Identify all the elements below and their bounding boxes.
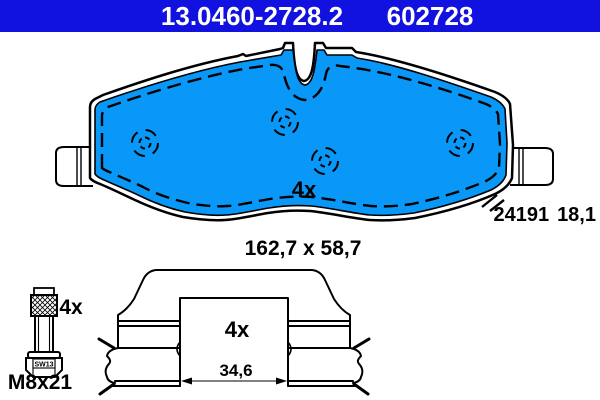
clip-right-foot: [288, 348, 362, 386]
dimension-arrow-left: [181, 378, 192, 385]
bolt-thread-size-label: M8x21: [8, 371, 73, 394]
pad-thickness-value: 18,1: [557, 204, 596, 226]
dimension-arrow-right: [276, 378, 287, 385]
pad-quantity-label: 4x: [292, 177, 317, 202]
clip-left-foot: [106, 348, 180, 386]
pad-dimensions-label: 162,7 x 58,7: [245, 237, 362, 260]
oem-number-label: 602728: [387, 1, 474, 31]
brake-pad-drawing: 4x: [56, 43, 553, 220]
bolt-knurled-section: [31, 295, 57, 316]
bolt-shank: [35, 316, 53, 352]
clip-window-nubs: [177, 342, 291, 356]
part-number-label: 13.0460-2728.2: [161, 1, 343, 31]
technical-drawing-canvas: 13.0460-2728.2 602728: [0, 0, 600, 400]
pad-wva-thickness-label: 2419118,1: [494, 204, 596, 226]
bolt-tip: [34, 288, 54, 295]
bolt-wrench-size-label: SW13: [34, 362, 53, 369]
catalog-drawing-page: 13.0460-2728.2 602728: [0, 0, 600, 400]
pad-wva-number: 24191: [494, 204, 549, 226]
clip-quantity-label: 4x: [225, 317, 250, 342]
bolt-drawing: SW13: [26, 288, 62, 377]
clip-inner-width-label: 34,6: [219, 361, 252, 380]
bolt-quantity-label: 4x: [59, 296, 83, 319]
pad-right-ear: [510, 148, 553, 185]
pad-left-ear: [56, 147, 93, 186]
